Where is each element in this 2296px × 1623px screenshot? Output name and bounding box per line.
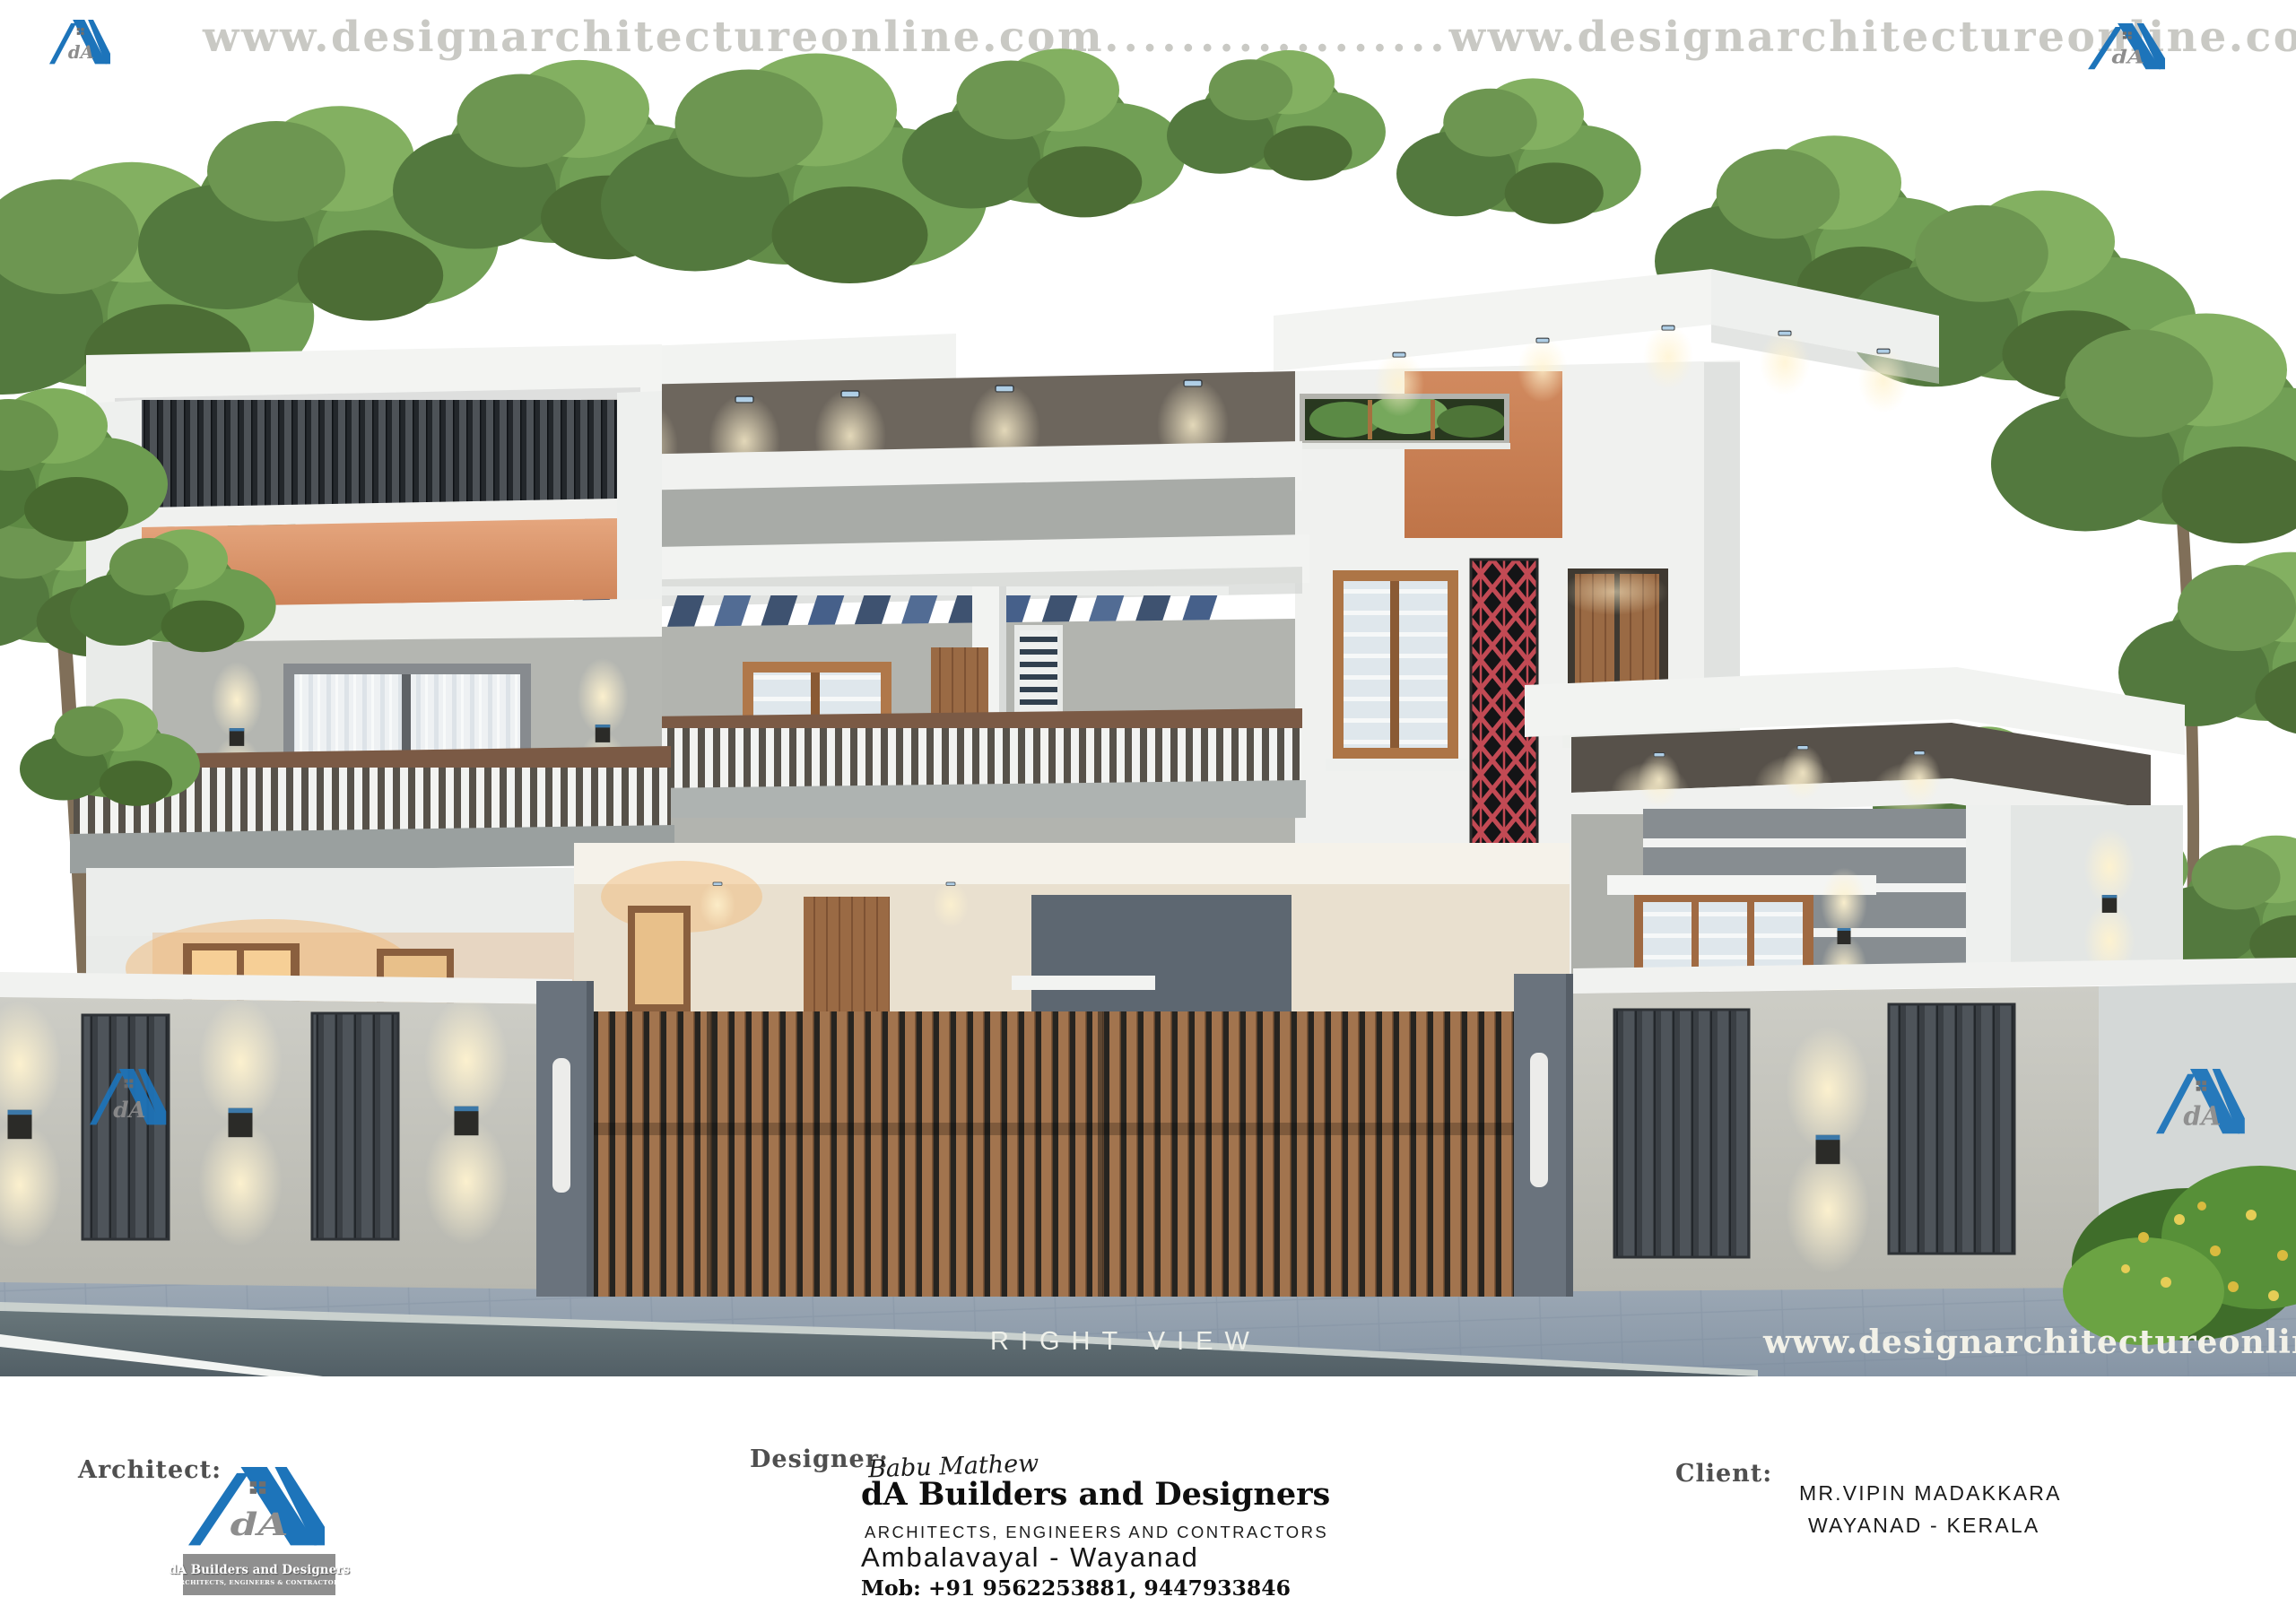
gate-handle-left — [552, 1058, 570, 1193]
annex-block — [1525, 667, 2185, 1005]
wall-slat-panel — [1614, 1010, 1749, 1257]
annex-concrete-column — [1571, 814, 1643, 986]
client-label: Client: — [1675, 1460, 1772, 1488]
balcony-balusters-center — [574, 728, 1302, 791]
designer-tagline: ARCHITECTS, ENGINEERS AND CONTRACTORS — [865, 1523, 1328, 1542]
architectural-presentation-sheet: dA www.designarchitectureonline.com.....… — [0, 0, 2296, 1623]
designer-location: Ambalavayal - Wayanad — [861, 1541, 1199, 1574]
designer-mobile: Mob: +91 9562253881, 9447933846 — [861, 1575, 1291, 1601]
gate-handle-right — [1530, 1053, 1548, 1187]
render-watermark-url: www.designarchitectureonline.com — [1763, 1324, 2285, 1361]
client-name: MR.VIPIN MADAKKARA — [1799, 1481, 2062, 1506]
ground-floor-porch — [574, 843, 1570, 1015]
porch-door — [804, 897, 890, 1013]
client-location: WAYANAD - KERALA — [1808, 1514, 2039, 1538]
architect-logo — [188, 1467, 325, 1549]
architect-logo-tagline: ARCHITECTS, ENGINEERS & CONTRACTORS — [175, 1579, 344, 1586]
wall-slat-panel — [312, 1013, 398, 1239]
dark-louver-band — [142, 400, 617, 508]
entrance-door — [1634, 895, 1813, 977]
wall-slat-panel — [1889, 1004, 2014, 1254]
wall-slat-panel — [83, 1015, 169, 1239]
designer-firm-name: dA Builders and Designers — [861, 1476, 1330, 1513]
architect-logo-firm: dA Builders and Designers — [169, 1563, 350, 1577]
wooden-slat-gate — [594, 1011, 1514, 1297]
view-label: RIGHT VIEW — [990, 1327, 1261, 1357]
wood-window-right-block — [1326, 570, 1467, 771]
house-render — [0, 0, 2296, 1623]
architect-logo-box: dA Builders and Designers ARCHITECTS, EN… — [183, 1554, 335, 1595]
